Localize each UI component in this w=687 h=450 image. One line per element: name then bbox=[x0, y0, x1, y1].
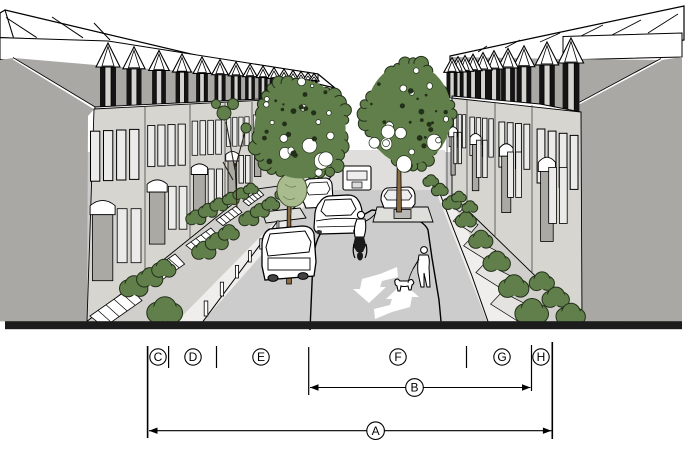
svg-text:F: F bbox=[394, 350, 401, 364]
svg-text:D: D bbox=[189, 350, 198, 364]
svg-text:E: E bbox=[257, 350, 265, 364]
svg-text:B: B bbox=[410, 381, 418, 395]
svg-text:A: A bbox=[372, 424, 380, 438]
svg-text:C: C bbox=[154, 350, 163, 364]
svg-text:H: H bbox=[537, 350, 546, 364]
svg-text:G: G bbox=[497, 350, 506, 364]
